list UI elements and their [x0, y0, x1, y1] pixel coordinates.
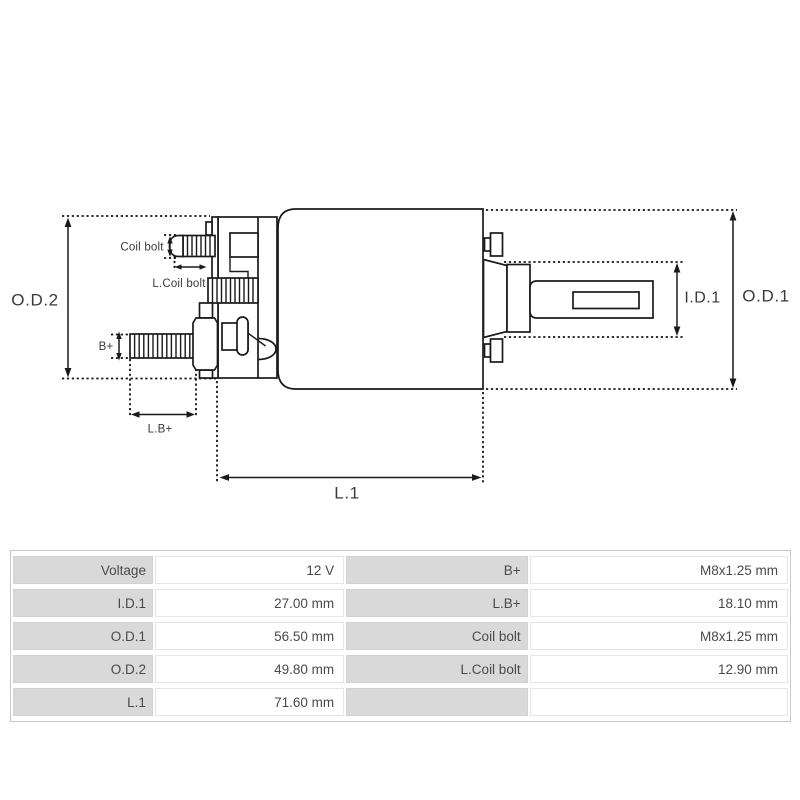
hex-nut [193, 318, 218, 370]
dim-od2: O.D.2 [11, 218, 71, 378]
spec-value: 56.50 mm [155, 622, 344, 650]
spec-value: M8x1.25 mm [530, 622, 788, 650]
plunger-collar [507, 265, 530, 333]
table-row: L.1 71.60 mm [13, 688, 788, 716]
coil-bolt [170, 236, 216, 257]
l1-label: L.1 [334, 484, 359, 503]
plunger-flange [484, 260, 508, 338]
l-coil-bolt-label: L.Coil bolt [152, 278, 206, 290]
spec-label: I.D.1 [13, 589, 153, 617]
spec-value: 18.10 mm [530, 589, 788, 617]
table-row: O.D.2 49.80 mm L.Coil bolt 12.90 mm [13, 655, 788, 683]
dim-id1: I.D.1 [674, 263, 721, 336]
spec-table: Voltage 12 V B+ M8x1.25 mm I.D.1 27.00 m… [10, 550, 791, 722]
spec-label: L.1 [13, 688, 153, 716]
table-row: O.D.1 56.50 mm Coil bolt M8x1.25 mm [13, 622, 788, 650]
spec-label [346, 688, 527, 716]
od1-label: O.D.1 [742, 287, 789, 306]
dim-od1: O.D.1 [730, 211, 790, 388]
dim-b-plus: B+ [99, 332, 122, 361]
spec-label: L.Coil bolt [346, 655, 527, 683]
spec-value: 49.80 mm [155, 655, 344, 683]
od2-label: O.D.2 [11, 291, 58, 310]
spec-label: O.D.1 [13, 622, 153, 650]
dim-coil-bolt: Coil bolt [120, 236, 172, 257]
b-plus-label: B+ [99, 341, 114, 353]
solenoid-body-outline [278, 209, 483, 389]
coil-bolt-label: Coil bolt [120, 242, 164, 254]
lb-plus-label: L.B+ [148, 424, 173, 436]
table-row: Voltage 12 V B+ M8x1.25 mm [13, 556, 788, 584]
shaft-slot [573, 292, 639, 309]
upper-mount-tab [491, 233, 503, 256]
spec-value: 12.90 mm [530, 655, 788, 683]
spec-value: 12 V [155, 556, 344, 584]
dim-lb-plus: L.B+ [131, 411, 195, 435]
spec-label: B+ [346, 556, 527, 584]
plunger [484, 233, 654, 362]
contact-post [237, 317, 248, 355]
id1-label: I.D.1 [684, 290, 720, 307]
coil-bolt-head [170, 236, 184, 257]
solenoid-technical-drawing: O.D.2 O.D.1 I.D.1 L.1 L.B+ [0, 0, 800, 545]
spec-value: 27.00 mm [155, 589, 344, 617]
spec-label: O.D.2 [13, 655, 153, 683]
lower-mount-tab [491, 339, 503, 362]
coil-terminal-stud [208, 278, 258, 303]
dim-l1: L.1 [220, 474, 482, 502]
upper-contact-block [230, 233, 258, 257]
spec-label: Voltage [13, 556, 153, 584]
spec-label: L.B+ [346, 589, 527, 617]
spec-label: Coil bolt [346, 622, 527, 650]
spec-value [530, 688, 788, 716]
spec-value: M8x1.25 mm [530, 556, 788, 584]
dim-l-coil-bolt: L.Coil bolt [152, 264, 206, 290]
page: O.D.2 O.D.1 I.D.1 L.1 L.B+ [0, 0, 800, 800]
table-row: I.D.1 27.00 mm L.B+ 18.10 mm [13, 589, 788, 617]
spec-value: 71.60 mm [155, 688, 344, 716]
